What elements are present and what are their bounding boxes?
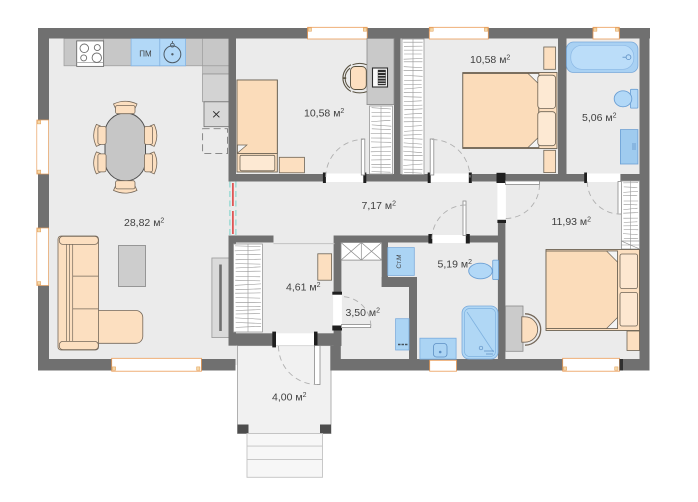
svg-text:10,58 м2: 10,58 м2 <box>470 54 510 66</box>
svg-text:Ст.М: Ст.М <box>396 254 403 268</box>
svg-text:7,17 м2: 7,17 м2 <box>362 200 397 212</box>
svg-text:5,06 м2: 5,06 м2 <box>582 112 617 124</box>
svg-text:28,82 м2: 28,82 м2 <box>124 217 164 229</box>
svg-text:3,50 м2: 3,50 м2 <box>346 307 381 319</box>
svg-text:11,93 м2: 11,93 м2 <box>552 216 592 228</box>
svg-text:10,58 м2: 10,58 м2 <box>304 108 344 120</box>
svg-text:4,61 м2: 4,61 м2 <box>286 282 321 294</box>
svg-text:5,19 м2: 5,19 м2 <box>438 259 473 271</box>
svg-text:4,00 м2: 4,00 м2 <box>272 392 307 404</box>
svg-text:ПМ: ПМ <box>139 50 152 59</box>
